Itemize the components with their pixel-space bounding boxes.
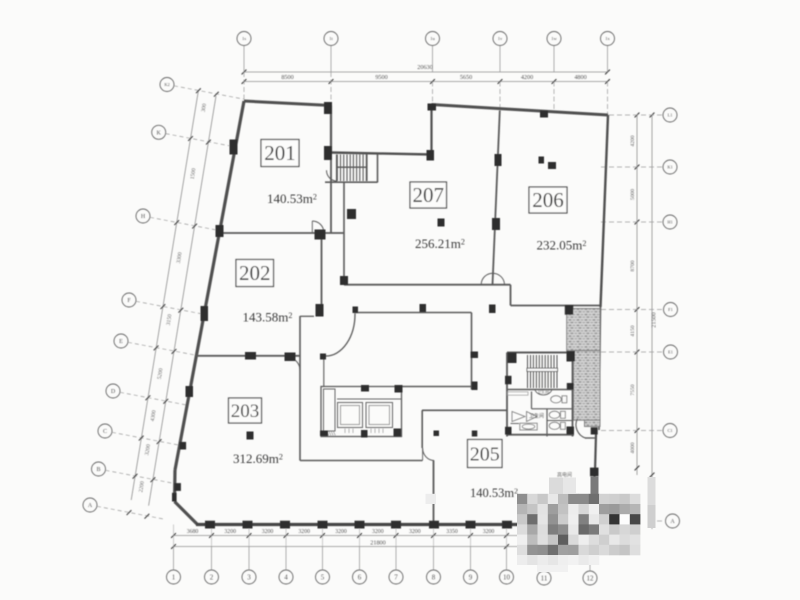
svg-text:E: E [119, 339, 123, 345]
svg-text:A: A [88, 503, 93, 509]
svg-text:201: 201 [264, 141, 296, 165]
svg-text:207: 207 [412, 183, 444, 207]
svg-text:10: 10 [503, 574, 511, 582]
svg-text:20630: 20630 [417, 64, 432, 71]
svg-text:3350: 3350 [446, 529, 458, 535]
svg-text:L1: L1 [668, 113, 673, 118]
svg-text:3200: 3200 [483, 529, 495, 535]
svg-text:C1: C1 [667, 428, 672, 433]
svg-text:E1: E1 [668, 350, 673, 355]
svg-text:高电间: 高电间 [557, 472, 572, 479]
svg-text:5000: 5000 [630, 189, 636, 200]
svg-text:8: 8 [432, 574, 436, 582]
svg-text:140.53m2: 140.53m2 [267, 191, 317, 206]
svg-text:3680: 3680 [187, 529, 199, 535]
svg-text:232.05m2: 232.05m2 [537, 238, 587, 253]
svg-text:12: 12 [587, 575, 595, 583]
svg-text:3200: 3200 [224, 529, 236, 535]
svg-text:140.53m2: 140.53m2 [470, 486, 518, 500]
svg-text:1v: 1v [498, 36, 503, 41]
svg-text:K: K [157, 131, 162, 137]
svg-text:F1: F1 [668, 307, 673, 312]
svg-text:3200: 3200 [298, 529, 310, 535]
svg-text:9500: 9500 [375, 74, 387, 81]
svg-text:206: 206 [532, 188, 564, 212]
svg-text:4200: 4200 [521, 74, 533, 81]
svg-text:卫生间: 卫生间 [537, 388, 550, 395]
svg-text:3200: 3200 [335, 529, 347, 535]
svg-text:H1: H1 [667, 220, 672, 225]
svg-text:卫生间: 卫生间 [529, 412, 544, 419]
svg-text:K2: K2 [164, 82, 169, 87]
svg-text:3200: 3200 [372, 529, 384, 535]
svg-text:11: 11 [541, 575, 548, 583]
svg-text:3200: 3200 [262, 529, 274, 535]
svg-text:205: 205 [470, 443, 500, 465]
svg-text:4200: 4200 [630, 135, 636, 146]
svg-text:4800: 4800 [574, 74, 586, 81]
svg-text:6: 6 [358, 574, 362, 582]
svg-text:1x: 1x [605, 36, 610, 41]
svg-text:143.58m2: 143.58m2 [243, 310, 293, 325]
svg-text:8500: 8500 [281, 74, 293, 81]
svg-text:9: 9 [469, 574, 473, 582]
svg-text:312.69m2: 312.69m2 [233, 451, 283, 466]
svg-text:3200: 3200 [409, 529, 421, 535]
svg-text:H: H [141, 214, 146, 220]
svg-text:1u: 1u [430, 36, 435, 41]
svg-text:4: 4 [284, 574, 288, 582]
svg-text:4000: 4000 [630, 442, 636, 453]
svg-text:202: 202 [239, 261, 271, 285]
svg-text:1s: 1s [242, 36, 246, 41]
svg-text:203: 203 [231, 401, 260, 422]
svg-text:2: 2 [210, 574, 214, 582]
svg-text:D: D [111, 389, 116, 395]
svg-text:A: A [670, 519, 675, 525]
svg-text:256.21m2: 256.21m2 [415, 236, 465, 251]
svg-text:K1: K1 [667, 165, 672, 170]
svg-text:B: B [96, 467, 100, 473]
svg-text:C: C [103, 429, 107, 435]
svg-text:4150: 4150 [630, 325, 636, 336]
svg-text:5: 5 [321, 574, 325, 582]
svg-text:21800: 21800 [370, 540, 385, 547]
svg-text:1: 1 [172, 574, 176, 582]
svg-text:21500: 21500 [651, 312, 658, 327]
svg-text:7550: 7550 [630, 384, 636, 395]
svg-text:7: 7 [394, 574, 398, 582]
svg-text:1w: 1w [551, 36, 557, 41]
svg-text:3: 3 [247, 574, 251, 582]
svg-text:5650: 5650 [460, 74, 472, 81]
svg-text:8700: 8700 [630, 260, 636, 271]
